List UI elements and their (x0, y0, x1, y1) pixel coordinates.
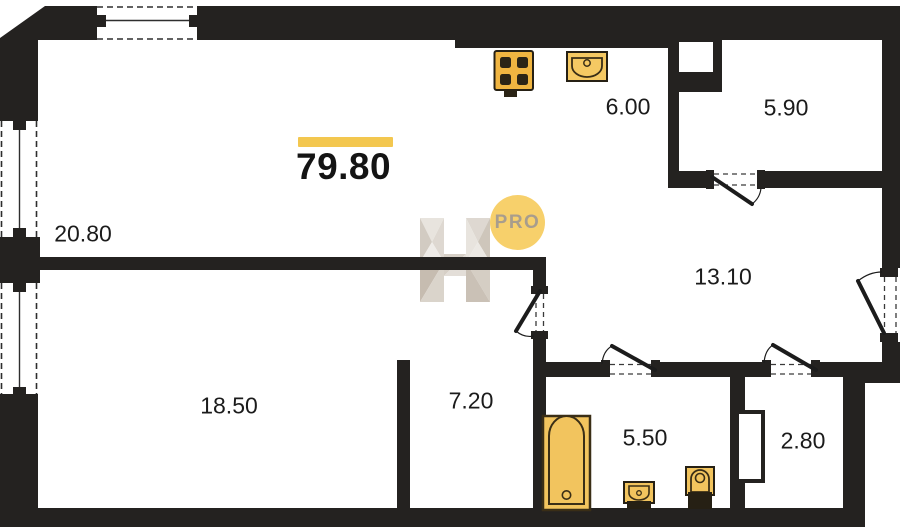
room-label-hallway: 13.10 (694, 264, 752, 291)
wall-segment (882, 6, 900, 268)
door-post (880, 268, 898, 277)
door-balcony (858, 272, 884, 333)
door-post (762, 360, 771, 377)
wall-segment (455, 40, 679, 48)
room-label-storage: 2.80 (781, 428, 826, 455)
door-storage (764, 345, 816, 370)
bathroom-sink-icon (624, 482, 654, 509)
duct-notch (679, 42, 713, 72)
wall-segment (668, 171, 706, 188)
door-post (531, 331, 548, 339)
door-post (757, 170, 765, 189)
wall-segment (668, 33, 679, 187)
wall-segment (860, 362, 900, 383)
door-wardrobe (712, 177, 761, 204)
room-label-bedroom: 18.50 (200, 393, 258, 420)
toilet-icon (686, 467, 714, 509)
wall-segment (0, 257, 546, 270)
room-label-bathroom: 5.50 (623, 425, 668, 452)
room-label-kitchen: 6.00 (606, 94, 651, 121)
stove-icon (495, 51, 534, 97)
wall-segment (397, 360, 410, 510)
window-left-lower (0, 283, 38, 397)
wall-segment (0, 6, 97, 121)
total-area-value: 79.80 (296, 146, 391, 188)
wall-segment (0, 397, 38, 527)
bathtub-icon (543, 416, 590, 510)
pro-badge: PRO (490, 195, 545, 250)
floor-plan-drawing (0, 0, 900, 527)
room-label-living-room: 20.80 (54, 221, 112, 248)
wall-segment (0, 237, 40, 283)
floor-plan: 79.80 PRO 20.80 18.50 7.20 6.00 5.90 13.… (0, 0, 900, 527)
wall-segment (0, 508, 865, 527)
room-label-corridor: 7.20 (449, 388, 494, 415)
window-left-upper (0, 118, 38, 237)
pro-badge-label: PRO (495, 212, 541, 234)
room-label-wardrobe: 5.90 (764, 95, 809, 122)
kitchen-sink-icon (567, 52, 607, 81)
wall-segment (660, 362, 762, 377)
vent-shaft (737, 412, 763, 481)
wall-segment (765, 171, 882, 188)
wall-segment (533, 258, 546, 286)
wall-segment (843, 377, 865, 527)
wall-segment (197, 6, 900, 40)
wall-segment (533, 362, 601, 377)
window-top (97, 7, 198, 39)
